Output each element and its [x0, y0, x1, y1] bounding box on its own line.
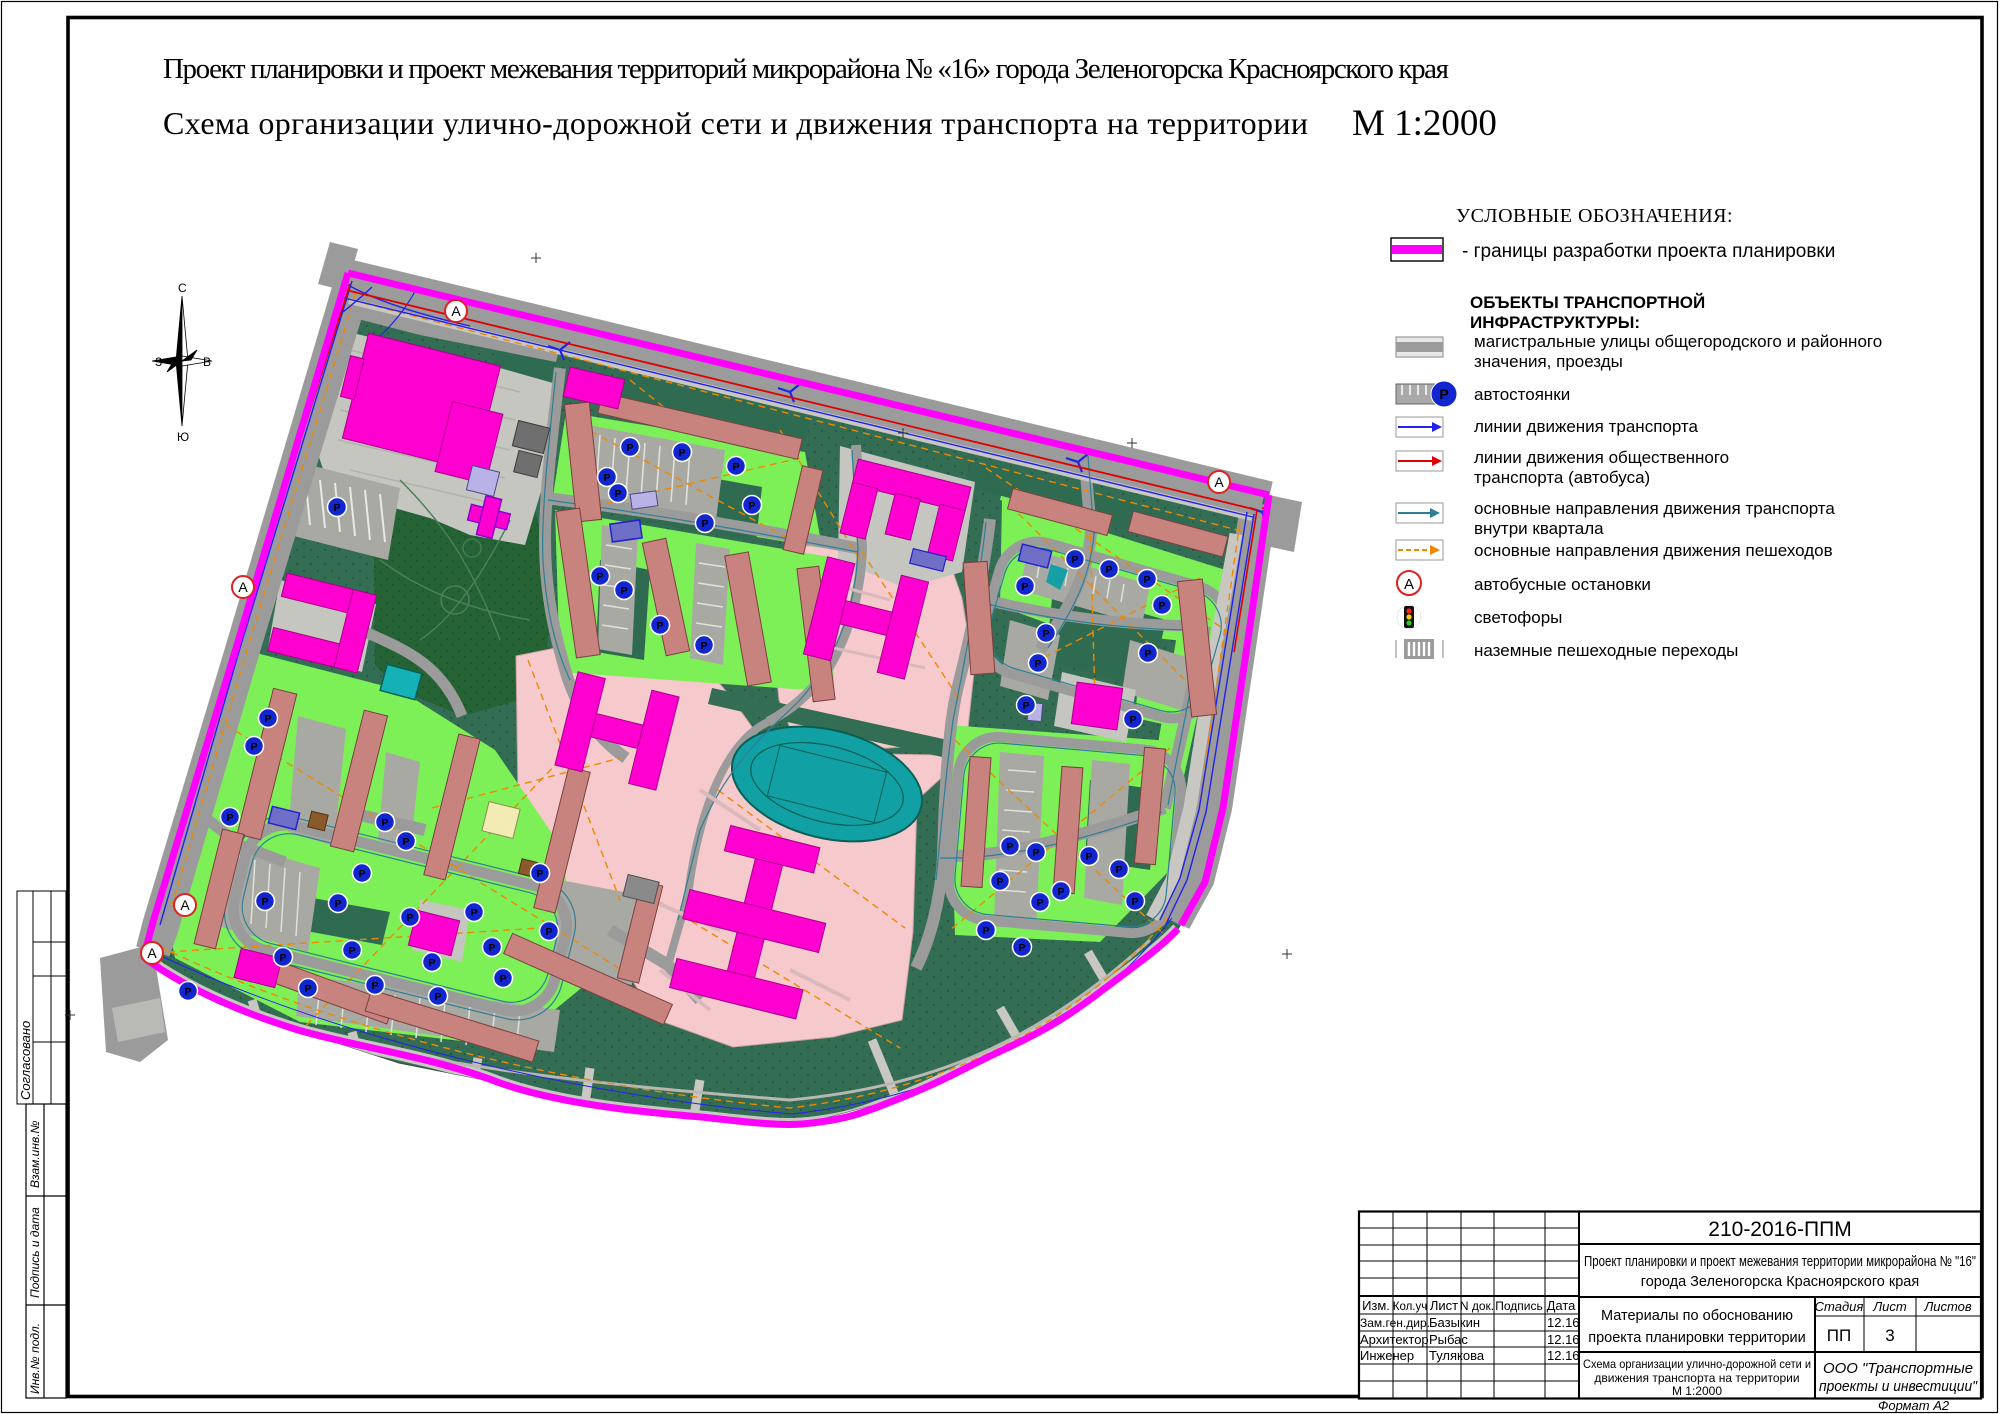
svg-text:ПП: ПП	[1827, 1326, 1851, 1345]
svg-text:Схема организации улично-дорож: Схема организации улично-дорожной сети и	[1583, 1357, 1811, 1371]
svg-text:светофоры: светофоры	[1474, 608, 1562, 627]
svg-text:Р: Р	[1143, 574, 1150, 586]
svg-text:Р: Р	[381, 817, 388, 829]
svg-text:Лист: Лист	[1872, 1299, 1907, 1314]
svg-text:Р: Р	[1071, 554, 1078, 566]
svg-text:Р: Р	[402, 836, 409, 848]
svg-text:Формат А2: Формат А2	[1878, 1398, 1950, 1413]
svg-text:Р: Р	[1115, 864, 1122, 876]
svg-text:Р: Р	[184, 986, 191, 998]
svg-text:внутри квартала: внутри квартала	[1474, 519, 1604, 538]
svg-text:линии движения транспорта: линии движения транспорта	[1474, 417, 1699, 436]
svg-text:Р: Р	[470, 907, 477, 919]
svg-text:А: А	[180, 897, 190, 913]
svg-text:наземные пешеходные переходы: наземные пешеходные переходы	[1474, 641, 1738, 660]
svg-text:Схема организации улично-дорож: Схема организации улично-дорожной сети и…	[163, 105, 1308, 141]
svg-text:Р: Р	[701, 518, 708, 530]
svg-text:Изм.: Изм.	[1362, 1298, 1390, 1313]
svg-text:Взам.инв.№: Взам.инв.№	[28, 1120, 42, 1188]
svg-text:Лист: Лист	[1430, 1298, 1458, 1313]
svg-text:Р: Р	[620, 585, 627, 597]
svg-text:автобусные остановки: автобусные остановки	[1474, 575, 1651, 594]
svg-text:Инженер: Инженер	[1360, 1348, 1414, 1363]
svg-text:магистральные улицы общегородс: магистральные улицы общегородского и рай…	[1474, 332, 1882, 351]
svg-text:Р: Р	[261, 896, 268, 908]
svg-text:Подпись: Подпись	[1495, 1299, 1543, 1313]
svg-text:Р: Р	[1105, 564, 1112, 576]
svg-text:Р: Р	[406, 912, 413, 924]
svg-text:12.16: 12.16	[1547, 1315, 1580, 1330]
svg-text:Архитектор: Архитектор	[1360, 1332, 1429, 1347]
svg-text:Р: Р	[250, 741, 257, 753]
svg-text:Р: Р	[1034, 658, 1041, 670]
svg-text:Рыбас: Рыбас	[1429, 1332, 1468, 1347]
svg-text:Р: Р	[1032, 847, 1039, 859]
svg-text:Р: Р	[748, 500, 755, 512]
svg-text:Р: Р	[732, 461, 739, 473]
svg-text:Р: Р	[982, 925, 989, 937]
svg-text:Р: Р	[488, 942, 495, 954]
svg-text:Р: Р	[536, 868, 543, 880]
svg-text:А: А	[147, 945, 157, 961]
svg-text:Р: Р	[371, 980, 378, 992]
svg-text:А: А	[238, 579, 248, 595]
svg-text:движения транспорта на террито: движения транспорта на территории	[1594, 1371, 1799, 1385]
svg-text:проекты и инвестиции": проекты и инвестиции"	[1819, 1378, 1978, 1395]
svg-text:Стадия: Стадия	[1815, 1299, 1864, 1314]
svg-text:Р: Р	[545, 926, 552, 938]
svg-text:А: А	[1404, 576, 1414, 593]
svg-text:Р: Р	[358, 868, 365, 880]
svg-text:Р: Р	[1021, 581, 1028, 593]
svg-text:Дата: Дата	[1547, 1298, 1577, 1313]
svg-text:Р: Р	[1144, 648, 1151, 660]
svg-text:В: В	[203, 355, 211, 369]
svg-text:А: А	[1214, 474, 1224, 490]
svg-text:линии движения общественного: линии движения общественного	[1474, 448, 1729, 467]
svg-text:Р: Р	[1129, 714, 1136, 726]
svg-text:УСЛОВНЫЕ ОБОЗНАЧЕНИЯ:: УСЛОВНЫЕ ОБОЗНАЧЕНИЯ:	[1456, 205, 1733, 227]
svg-text:С: С	[178, 281, 187, 295]
svg-text:Р: Р	[603, 472, 610, 484]
svg-text:Р: Р	[996, 876, 1003, 888]
svg-text:12.16: 12.16	[1547, 1348, 1580, 1363]
svg-text:Р: Р	[1006, 841, 1013, 853]
svg-text:Листов: Листов	[1923, 1299, 1972, 1314]
svg-text:Р: Р	[279, 952, 286, 964]
svg-text:Р: Р	[304, 983, 311, 995]
svg-text:Р: Р	[626, 442, 633, 454]
svg-text:Зам.ген.дир.: Зам.ген.дир.	[1360, 1316, 1430, 1330]
svg-text:Р: Р	[1085, 851, 1092, 863]
svg-text:Р: Р	[700, 640, 707, 652]
svg-text:ООО "Транспортные: ООО "Транспортные	[1823, 1360, 1973, 1377]
svg-text:Р: Р	[1018, 942, 1025, 954]
svg-text:основные направления движения: основные направления движения пешеходов	[1474, 541, 1833, 560]
svg-text:Кол.уч: Кол.уч	[1393, 1301, 1428, 1313]
svg-text:Р: Р	[333, 502, 340, 514]
svg-text:А: А	[451, 303, 461, 319]
svg-text:Р: Р	[656, 620, 663, 632]
svg-text:Р: Р	[1131, 896, 1138, 908]
svg-text:основные направления движения: основные направления движения транспорта	[1474, 499, 1835, 518]
svg-text:12.16: 12.16	[1547, 1332, 1580, 1347]
svg-text:значения, проезды: значения, проезды	[1474, 352, 1623, 371]
svg-text:Проект планировки и проект меж: Проект планировки и проект межевания тер…	[1584, 1254, 1976, 1270]
svg-text:Базыкин: Базыкин	[1429, 1315, 1480, 1330]
svg-text:Р: Р	[614, 488, 621, 500]
svg-text:Р: Р	[428, 957, 435, 969]
svg-text:Р: Р	[434, 991, 441, 1003]
svg-text:Материалы по обоснованию: Материалы по обоснованию	[1601, 1308, 1793, 1324]
svg-text:транспорта (автобуса): транспорта (автобуса)	[1474, 468, 1650, 487]
svg-text:З: З	[155, 355, 162, 369]
svg-text:Согласовано: Согласовано	[18, 1021, 33, 1100]
svg-text:Инв.№ подл.: Инв.№ подл.	[28, 1323, 42, 1394]
svg-text:Р: Р	[1057, 886, 1064, 898]
svg-text:P: P	[1439, 386, 1448, 402]
svg-text:ИНФРАСТРУКТУРЫ:: ИНФРАСТРУКТУРЫ:	[1470, 313, 1640, 332]
svg-text:проекта планировки территории: проекта планировки территории	[1588, 1330, 1806, 1346]
svg-text:города Зеленогорска Красноярск: города Зеленогорска Красноярского края	[1641, 1274, 1919, 1290]
svg-text:М 1:2000: М 1:2000	[1352, 103, 1497, 144]
svg-text:Р: Р	[226, 812, 233, 824]
svg-text:210-2016-ППМ: 210-2016-ППМ	[1708, 1218, 1851, 1241]
svg-text:Р: Р	[1158, 600, 1165, 612]
svg-text:Р: Р	[334, 898, 341, 910]
svg-text:М 1:2000: М 1:2000	[1672, 1384, 1722, 1398]
svg-text:Р: Р	[678, 447, 685, 459]
svg-text:Р: Р	[348, 945, 355, 957]
svg-text:3: 3	[1885, 1326, 1894, 1345]
svg-text:Р: Р	[1022, 700, 1029, 712]
svg-text:ОБЪЕКТЫ ТРАНСПОРТНОЙ: ОБЪЕКТЫ ТРАНСПОРТНОЙ	[1470, 293, 1705, 312]
svg-text:Р: Р	[264, 713, 271, 725]
svg-text:Р: Р	[596, 571, 603, 583]
svg-text:Р: Р	[499, 973, 506, 985]
svg-text:Р: Р	[1042, 628, 1049, 640]
svg-text:- границы разработки проекта п: - границы разработки проекта планировки	[1462, 241, 1835, 262]
svg-text:автостоянки: автостоянки	[1474, 385, 1570, 404]
svg-text:N док.: N док.	[1460, 1299, 1494, 1313]
svg-text:Ю: Ю	[177, 430, 189, 444]
svg-text:Подпись и дата: Подпись и дата	[28, 1207, 42, 1298]
svg-text:Р: Р	[1036, 897, 1043, 909]
svg-text:Проект планировки и проект меж: Проект планировки и проект межевания тер…	[163, 53, 1449, 85]
svg-text:Тулякова: Тулякова	[1429, 1348, 1485, 1363]
